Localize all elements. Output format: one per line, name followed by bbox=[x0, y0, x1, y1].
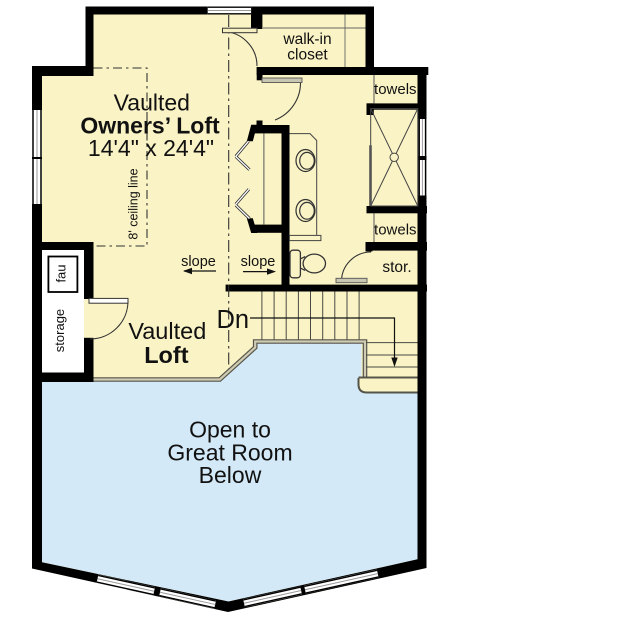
svg-text:slope: slope bbox=[181, 254, 216, 270]
svg-text:closet: closet bbox=[287, 47, 328, 64]
svg-text:slope: slope bbox=[241, 254, 276, 270]
svg-text:Below: Below bbox=[199, 462, 262, 488]
svg-text:towels: towels bbox=[374, 81, 417, 98]
svg-text:Dn: Dn bbox=[217, 306, 250, 334]
svg-text:14'4" x 24'4": 14'4" x 24'4" bbox=[88, 135, 214, 161]
svg-text:walk-in: walk-in bbox=[282, 31, 331, 48]
svg-text:towels: towels bbox=[374, 222, 417, 239]
svg-text:stor.: stor. bbox=[382, 259, 411, 276]
svg-text:Loft: Loft bbox=[144, 342, 189, 368]
svg-text:8' ceiling line: 8' ceiling line bbox=[127, 168, 141, 239]
svg-text:fau: fau bbox=[53, 264, 68, 282]
svg-text:storage: storage bbox=[52, 309, 67, 352]
svg-text:Vaulted: Vaulted bbox=[128, 318, 206, 344]
